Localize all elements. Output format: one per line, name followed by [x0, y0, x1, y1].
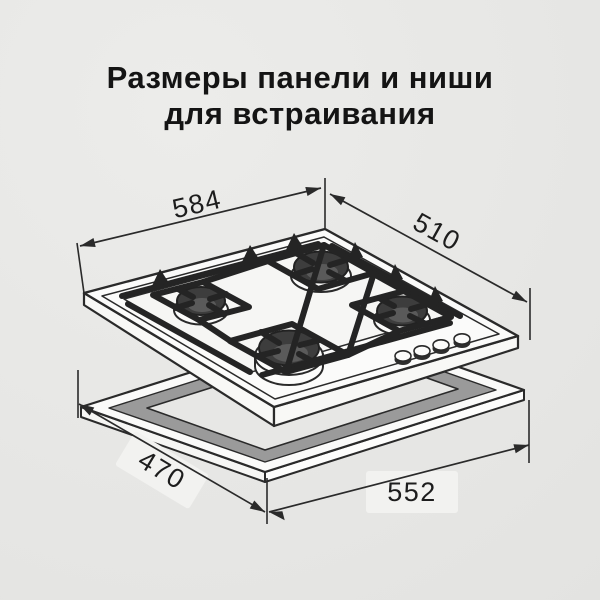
screenshot-root: Размеры панели и ниши для встраивания [0, 0, 600, 600]
niche-width-label: 552 [387, 477, 437, 507]
arrowhead [80, 238, 96, 247]
arrowhead [512, 291, 527, 302]
installation-diagram: 584 510 470 552 [0, 0, 600, 600]
arrowhead [330, 194, 345, 205]
knob-3 [433, 340, 450, 354]
arrowhead [250, 501, 265, 513]
knob-2 [414, 346, 431, 360]
knob-4 [454, 334, 471, 348]
arrowhead [305, 187, 321, 196]
knob-top [414, 346, 430, 356]
panel-depth-label: 510 [408, 207, 466, 257]
knob-top [433, 340, 449, 350]
arrowhead [513, 444, 529, 453]
knob-top [395, 351, 411, 361]
knob-1 [395, 351, 412, 365]
arrowhead [269, 511, 285, 520]
extension-line [77, 243, 84, 293]
knob-top [454, 334, 470, 344]
panel-width-label: 584 [169, 184, 224, 224]
